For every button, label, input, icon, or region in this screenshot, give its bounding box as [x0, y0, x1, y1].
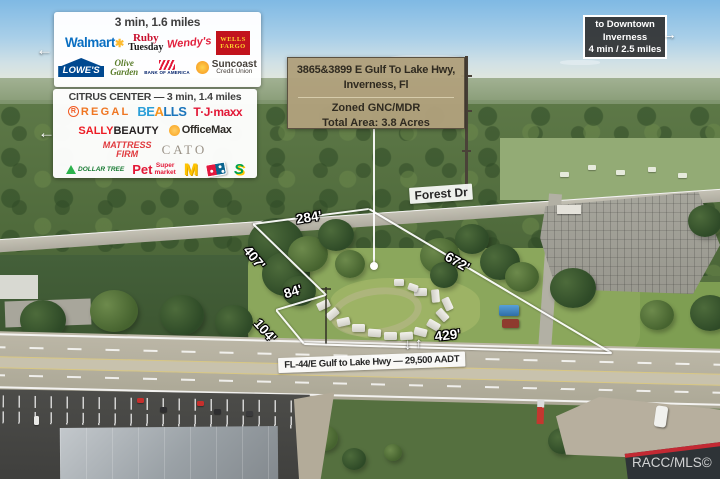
car [214, 409, 221, 414]
tree-clump [342, 448, 366, 470]
property-address-line2: Inverness, Fl [288, 78, 464, 93]
dollar-tree-logo: DOLLAR TREE [66, 165, 124, 174]
sun-icon [196, 61, 209, 74]
tree-clump [335, 250, 365, 278]
arrow-left-icon: ← [38, 123, 55, 143]
traffic-arrow-up-icon: ↑ [415, 335, 423, 352]
car [197, 401, 204, 406]
citrus-center-box: CITRUS CENTER — 3 min, 1.4 miles RREGAL … [53, 89, 257, 178]
pet-supermarket-logo: PetSupermarket [132, 162, 176, 177]
tree-clump [505, 262, 539, 292]
boa-flag-icon [159, 60, 175, 70]
downtown-line2: Inverness [585, 32, 665, 45]
sun-icon [169, 125, 180, 136]
suncoast-logo: SuncoastCredit Union [196, 60, 257, 76]
walmart-logo: Walmart✱ [65, 34, 124, 52]
house [588, 165, 596, 170]
wells-fargo-logo: WELLSFARGO [216, 31, 250, 55]
property-address-line1: 3865&3899 E Gulf To Lake Hwy, [288, 63, 464, 78]
tree-icon [66, 165, 76, 174]
tree-clump [160, 295, 204, 335]
property-info-box: 3865&3899 E Gulf To Lake Hwy, Inverness,… [287, 57, 465, 129]
ruby-tuesday-logo: RubyTuesday [128, 33, 163, 53]
mattress-firm-logo: MATTRESSFIRM [103, 141, 152, 159]
citrus-center-header: CITRUS CENTER — 3 min, 1.4 miles [55, 91, 255, 103]
arrow-left-icon: ← [36, 40, 53, 60]
dimension-label-429: 429' [434, 326, 461, 344]
house [678, 173, 687, 178]
house [616, 170, 625, 175]
house [560, 172, 569, 177]
downtown-distance-box: to Downtown Inverness 4 min / 2.5 miles [583, 15, 667, 59]
red-structure [502, 319, 519, 328]
tower-crossbar [462, 150, 471, 152]
subway-logo: S [234, 162, 244, 177]
road-sign [537, 400, 545, 424]
trailer [368, 329, 382, 338]
bealls-logo: BEALLS [137, 104, 186, 119]
downtown-line1: to Downtown [585, 19, 665, 32]
walmart-spark-icon: ✱ [115, 38, 124, 50]
trailer [431, 289, 440, 303]
car [137, 398, 144, 403]
tree-clump [550, 268, 596, 308]
olive-garden-logo: OliveGarden [110, 59, 138, 77]
pointer-line [373, 129, 375, 264]
distant-lake [560, 60, 600, 65]
arrow-right-icon: → [662, 26, 677, 43]
bank-of-america-logo: BANK OF AMERICA [144, 60, 190, 76]
tree-clump [688, 205, 720, 237]
officemax-logo: OfficeMax [169, 124, 232, 136]
sally-beauty-logo: SALLYBEAUTY [78, 121, 158, 139]
blue-canopy [499, 305, 519, 316]
aerial-photo: 284' 407' 84' 104' 672' 429' Forest Dr F… [0, 0, 720, 479]
trailer [384, 332, 397, 340]
cell-tower [465, 56, 468, 196]
building [0, 275, 38, 299]
zoning-text: Zoned GNC/MDR [288, 101, 464, 116]
tree-clump [318, 219, 354, 251]
traffic-arrow-down-icon: ↓ [404, 336, 412, 353]
mcdonalds-logo: M [184, 161, 198, 178]
cato-logo: CATO [162, 142, 208, 158]
dominos-logo [205, 161, 227, 177]
downtown-line3: 4 min / 2.5 miles [585, 44, 665, 57]
shopping-center-roof [60, 426, 278, 479]
tree-clump [90, 290, 138, 332]
trailer [352, 324, 365, 332]
shed [394, 279, 404, 286]
pointer-dot [370, 262, 378, 270]
wendys-logo: Wendy's [167, 35, 212, 51]
house [648, 167, 656, 172]
tree-clump [384, 444, 402, 461]
nearby-retail-box: 3 min, 1.6 miles Walmart✱ RubyTuesday We… [54, 12, 261, 87]
tree-clump [640, 300, 674, 330]
substation-building [557, 205, 581, 214]
lowes-logo: LOWE'S [58, 58, 104, 77]
drive-time-header: 3 min, 1.6 miles [56, 15, 259, 29]
watermark: RACC/MLS© [632, 455, 712, 470]
tree-clump [215, 305, 253, 339]
car [34, 416, 39, 425]
regal-logo: RREGAL [68, 106, 131, 118]
car [160, 407, 167, 412]
parking-stalls [3, 395, 293, 412]
total-area-text: Total Area: 3.8 Acres [288, 116, 464, 131]
tjmaxx-logo: T·J·maxx [193, 105, 242, 119]
car [246, 411, 253, 416]
divider [298, 97, 454, 98]
